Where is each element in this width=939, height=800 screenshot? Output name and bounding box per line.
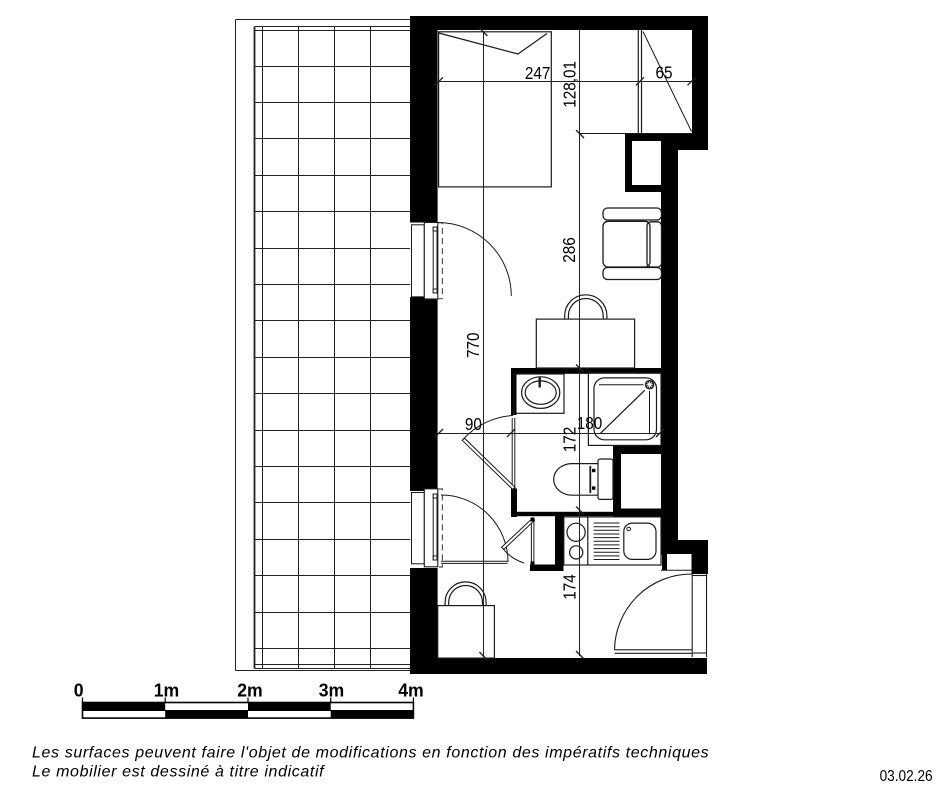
svg-text:90: 90 (465, 414, 482, 434)
svg-text:0: 0 (74, 680, 84, 700)
svg-text:4m: 4m (398, 680, 423, 700)
svg-text:180: 180 (577, 413, 603, 433)
svg-text:03.02.26: 03.02.26 (880, 768, 933, 785)
svg-text:65: 65 (655, 62, 672, 82)
svg-text:2m: 2m (237, 680, 262, 700)
svg-text:128,01: 128,01 (559, 61, 579, 108)
svg-text:Le mobilier est dessiné à titr: Le mobilier est dessiné à titre indicati… (32, 764, 325, 781)
svg-text:286: 286 (559, 237, 579, 263)
svg-text:770: 770 (463, 333, 483, 359)
svg-text:3m: 3m (319, 680, 344, 700)
svg-text:247: 247 (525, 63, 551, 83)
svg-text:174: 174 (559, 574, 579, 600)
svg-text:1m: 1m (154, 680, 179, 700)
svg-text:Les surfaces peuvent faire l'o: Les surfaces peuvent faire l'objet de mo… (32, 745, 709, 762)
